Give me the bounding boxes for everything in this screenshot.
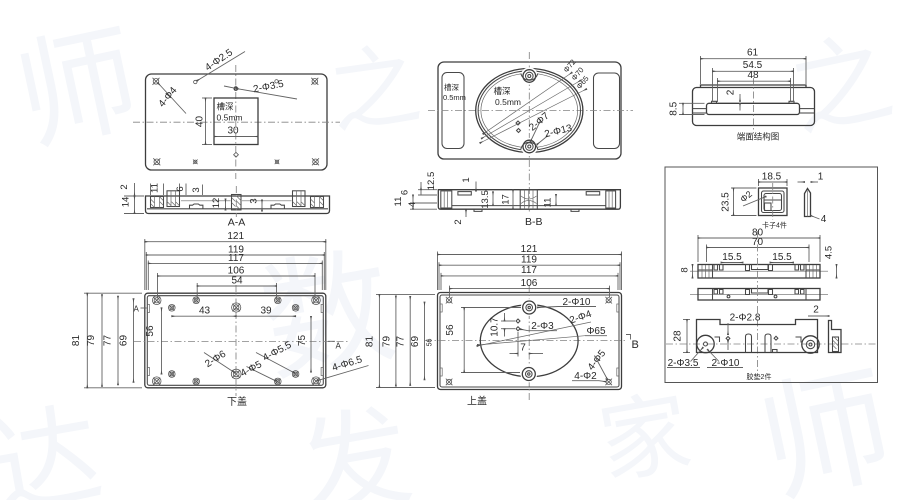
svg-text:上盖: 上盖 <box>467 395 487 408</box>
svg-text:1: 1 <box>818 172 824 183</box>
svg-text:23.5: 23.5 <box>721 192 732 212</box>
svg-text:槽深: 槽深 <box>217 102 235 112</box>
svg-text:发: 发 <box>291 393 421 500</box>
svg-text:77: 77 <box>396 336 407 348</box>
svg-text:4: 4 <box>407 202 418 207</box>
svg-text:2: 2 <box>119 184 130 189</box>
svg-text:12: 12 <box>211 198 222 209</box>
svg-text:师: 师 <box>5 11 150 167</box>
svg-text:0.5mm: 0.5mm <box>495 97 521 107</box>
svg-text:56: 56 <box>427 339 434 347</box>
svg-text:2-Φ6: 2-Φ6 <box>203 349 228 370</box>
svg-text:30: 30 <box>227 126 239 137</box>
svg-text:117: 117 <box>521 265 537 276</box>
svg-text:之: 之 <box>324 35 427 147</box>
svg-text:3: 3 <box>191 187 202 192</box>
svg-text:18.5: 18.5 <box>762 172 782 183</box>
svg-text:卡子4件: 卡子4件 <box>762 221 787 230</box>
svg-text:A: A <box>134 305 140 314</box>
svg-text:15.5: 15.5 <box>722 252 742 263</box>
svg-text:81: 81 <box>71 335 82 347</box>
svg-text:75: 75 <box>297 335 308 347</box>
svg-text:2: 2 <box>726 89 737 95</box>
svg-text:之: 之 <box>781 21 900 151</box>
svg-text:2: 2 <box>453 219 464 224</box>
svg-text:2: 2 <box>813 305 819 316</box>
svg-text:4-Φ5: 4-Φ5 <box>239 359 264 379</box>
svg-text:8.5: 8.5 <box>669 101 680 115</box>
svg-text:11: 11 <box>543 198 554 208</box>
svg-text:槽深: 槽深 <box>493 86 511 96</box>
svg-text:17: 17 <box>501 194 512 205</box>
svg-text:79: 79 <box>382 336 393 348</box>
svg-text:2-Φ13: 2-Φ13 <box>543 123 573 141</box>
svg-text:61: 61 <box>747 48 759 59</box>
svg-text:端面结构图: 端面结构图 <box>737 132 780 142</box>
svg-text:11: 11 <box>393 197 404 207</box>
svg-text:54: 54 <box>231 275 243 286</box>
svg-text:69: 69 <box>119 335 130 347</box>
svg-text:6: 6 <box>400 190 411 195</box>
svg-text:119: 119 <box>521 255 537 266</box>
svg-text:3: 3 <box>249 198 260 203</box>
svg-text:56: 56 <box>145 325 156 337</box>
svg-text:达: 达 <box>0 391 110 500</box>
svg-text:56: 56 <box>445 324 456 336</box>
svg-text:15.5: 15.5 <box>772 252 792 263</box>
svg-text:121: 121 <box>521 244 538 255</box>
svg-text:数: 数 <box>251 232 404 398</box>
svg-text:0.5mm: 0.5mm <box>217 113 243 123</box>
svg-text:槽深: 槽深 <box>444 82 459 92</box>
svg-text:7: 7 <box>520 343 526 354</box>
svg-text:77: 77 <box>103 335 114 347</box>
svg-text:B-B: B-B <box>525 216 543 228</box>
svg-text:14: 14 <box>121 197 132 208</box>
svg-text:4-Φ4: 4-Φ4 <box>157 85 180 110</box>
svg-text:1: 1 <box>461 177 472 182</box>
svg-text:69: 69 <box>410 336 421 348</box>
svg-text:6: 6 <box>175 186 186 191</box>
svg-text:4.5: 4.5 <box>824 246 835 259</box>
svg-text:13.5: 13.5 <box>480 190 491 209</box>
svg-text:121: 121 <box>227 231 244 242</box>
svg-text:79: 79 <box>86 335 97 347</box>
svg-text:家: 家 <box>592 382 698 496</box>
svg-text:43: 43 <box>199 306 211 317</box>
svg-text:胶垫2件: 胶垫2件 <box>747 372 772 381</box>
svg-text:11: 11 <box>150 183 161 193</box>
svg-text:A-A: A-A <box>228 217 246 229</box>
svg-text:81: 81 <box>365 336 376 348</box>
svg-text:10.7: 10.7 <box>490 317 501 337</box>
svg-text:2-Φ2.8: 2-Φ2.8 <box>730 313 761 324</box>
svg-text:B: B <box>632 339 639 351</box>
svg-text:40: 40 <box>195 116 206 128</box>
svg-text:39: 39 <box>260 306 272 317</box>
svg-text:下盖: 下盖 <box>227 395 247 408</box>
svg-text:106: 106 <box>521 278 538 289</box>
svg-text:48: 48 <box>747 70 759 81</box>
svg-text:8: 8 <box>680 267 691 272</box>
svg-text:28: 28 <box>673 330 684 342</box>
svg-text:12.5: 12.5 <box>426 172 437 191</box>
svg-text:4: 4 <box>821 214 827 225</box>
svg-text:2-Φ3.5: 2-Φ3.5 <box>252 79 285 96</box>
svg-text:0.5mm: 0.5mm <box>443 93 466 102</box>
svg-text:A: A <box>336 342 342 351</box>
svg-text:117: 117 <box>228 253 244 264</box>
